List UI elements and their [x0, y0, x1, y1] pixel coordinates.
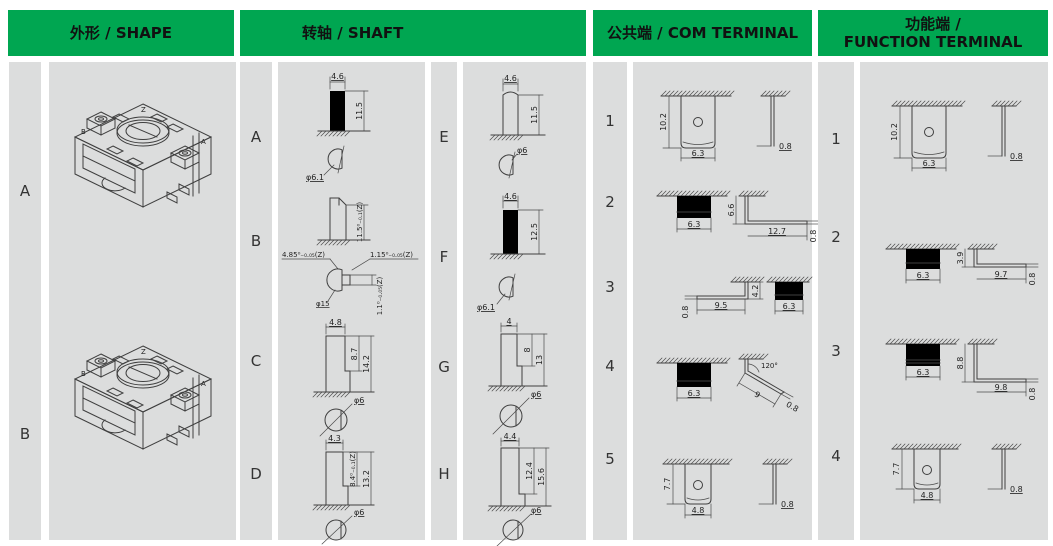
- shaft-row-label-d: D: [240, 465, 272, 483]
- shape-header-label: 外形 / SHAPE: [70, 24, 172, 42]
- dim-label: 8.4⁰₋₀.₁(Z): [349, 451, 357, 487]
- shaft-c-drawing: 4.8 8.7 14.2 φ6: [278, 318, 425, 434]
- shaft-row-label-c: C: [240, 352, 272, 370]
- function-panel: 10.2 6.3 0.8 6.3 3.9: [860, 62, 1048, 540]
- dim-label: 4.8: [921, 491, 934, 500]
- dim-label: 1.1⁰₋₀.₀₅(Z): [376, 276, 384, 315]
- com-terminal-header: 公共端 / COM TERMINAL: [593, 10, 812, 56]
- dim-label: 9: [753, 390, 762, 400]
- shaft-right-panel: 4.6 11.5 φ6 4.6 12.5 φ6.1: [463, 62, 586, 540]
- function-row-label-2: 2: [818, 228, 854, 246]
- dim-label: φ6: [531, 390, 541, 399]
- spec-sheet: 外形 / SHAPE 转轴 / SHAFT 公共端 / COM TERMINAL…: [0, 0, 1053, 546]
- shape-row-label-a: A: [9, 182, 41, 200]
- dim-label: 15.6: [537, 468, 546, 486]
- function-row-label-4: 4: [818, 447, 854, 465]
- shaft-header-label: 转轴 / SHAFT: [302, 24, 403, 42]
- dim-label: 120°: [761, 362, 778, 370]
- com-row-label-2: 2: [593, 193, 627, 211]
- dim-label: 8: [523, 347, 532, 352]
- dim-label: 6.3: [923, 159, 936, 168]
- shaft-row-label-g: G: [431, 358, 457, 376]
- dim-label: 0.8: [809, 230, 818, 243]
- dim-label: 6.3: [783, 302, 796, 311]
- dim-label: 10.2: [659, 113, 668, 131]
- dim-label: 12.4: [525, 462, 534, 480]
- dim-label: φ6: [354, 396, 364, 405]
- dim-label: φ6: [517, 146, 527, 155]
- dim-label: 4.2: [751, 285, 760, 298]
- shaft-left-label-column: A B C D: [240, 62, 272, 540]
- function-terminal-3-drawing: 6.3 8.8 9.8 0.8: [860, 334, 1048, 424]
- shape-label-column: A B: [9, 62, 41, 540]
- dim-label: 4.3: [328, 434, 341, 443]
- dim-label: 4.6: [331, 72, 344, 81]
- dim-label: 4.8: [329, 318, 342, 327]
- com-terminal-4-drawing: 6.3 120° 9 0.8: [633, 347, 812, 447]
- function-header-line2: FUNCTION TERMINAL: [844, 33, 1023, 51]
- dim-label: 0.8: [781, 500, 794, 509]
- com-terminal-1-drawing: 10.2 6.3 0.8: [633, 82, 812, 182]
- shaft-a-drawing: 4.6 11.5 φ6.1: [278, 67, 425, 182]
- dim-label: 0.8: [1028, 273, 1037, 286]
- dim-label: 6.3: [692, 149, 705, 158]
- dim-label: 1.15⁰₋₀.₀₅(Z): [370, 251, 413, 259]
- iso-mark-a: A: [201, 380, 206, 388]
- dim-label: φ15: [316, 300, 330, 308]
- dim-label: 0.8: [1010, 485, 1023, 494]
- dim-label: 6.3: [917, 271, 930, 280]
- com-label-column: 1 2 3 4 5: [593, 62, 627, 540]
- shape-b-isometric-drawing: Z A B: [49, 312, 236, 542]
- iso-mark-z: Z: [141, 106, 146, 114]
- function-header-line1: 功能端 /: [844, 15, 1023, 33]
- iso-mark-b: B: [81, 370, 86, 378]
- dim-label: 13: [535, 355, 544, 365]
- shape-a-isometric-drawing: Z A B: [49, 70, 236, 300]
- dim-label: 0.8: [784, 400, 800, 414]
- com-row-label-4: 4: [593, 357, 627, 375]
- shaft-header: 转轴 / SHAFT: [240, 10, 586, 56]
- iso-mark-a: A: [201, 138, 206, 146]
- dim-label: 9.5: [715, 301, 728, 310]
- dim-label: 0.8: [1010, 152, 1023, 161]
- dim-label: 6.3: [688, 389, 701, 398]
- dim-label: φ6: [531, 506, 541, 515]
- dim-label: 12.7: [768, 227, 786, 236]
- dim-label: φ6: [354, 508, 364, 517]
- shaft-row-label-a: A: [240, 128, 272, 146]
- dim-label: 8.7: [350, 348, 359, 361]
- com-terminal-5-drawing: 7.7 4.8 0.8: [633, 452, 812, 534]
- dim-label: 4.8: [692, 506, 705, 515]
- shaft-row-label-e: E: [431, 128, 457, 146]
- shaft-e-drawing: 4.6 11.5 φ6: [463, 67, 586, 187]
- dim-label: 6.6: [727, 204, 736, 217]
- function-terminal-header: 功能端 / FUNCTION TERMINAL: [818, 10, 1048, 56]
- shape-row-label-b: B: [9, 425, 41, 443]
- dim-label: φ6.1: [306, 173, 324, 182]
- com-row-label-1: 1: [593, 112, 627, 130]
- shaft-d-drawing: 4.3 8.4⁰₋₀.₁(Z) 13.2 φ6: [278, 436, 425, 540]
- dim-label: 4.4: [504, 432, 517, 441]
- function-row-label-3: 3: [818, 342, 854, 360]
- dim-label: 6.3: [917, 368, 930, 377]
- iso-mark-b: B: [81, 128, 86, 136]
- shaft-h-drawing: 4.4 12.4 15.6 φ6: [463, 436, 586, 540]
- dim-label: 4.6: [504, 192, 517, 201]
- dim-label: 13.2: [362, 470, 371, 488]
- dim-label: 11.5: [530, 106, 539, 124]
- iso-mark-z: Z: [141, 348, 146, 356]
- dim-label: 0.8: [681, 306, 690, 319]
- com-row-label-3: 3: [593, 278, 627, 296]
- dim-label: 11.5⁰₋₀.₁(Z): [356, 202, 364, 242]
- shaft-row-label-b: B: [240, 232, 272, 250]
- dim-label: 11.5: [355, 102, 364, 120]
- dim-label: 0.8: [779, 142, 792, 151]
- shaft-g-drawing: 4 8 13 φ6: [463, 320, 586, 434]
- dim-label: 7.7: [892, 463, 901, 476]
- function-row-label-1: 1: [818, 130, 854, 148]
- shaft-f-drawing: 4.6 12.5 φ6.1: [463, 190, 586, 318]
- dim-label: 4.85⁰₋₀.₀₅(Z): [282, 251, 325, 259]
- function-label-column: 1 2 3 4: [818, 62, 854, 540]
- function-terminal-2-drawing: 6.3 3.9 9.7 0.8: [860, 237, 1048, 317]
- dim-label: 3.9: [956, 252, 965, 265]
- dim-label: 6.3: [688, 220, 701, 229]
- dim-label: 7.7: [663, 478, 672, 491]
- com-row-label-5: 5: [593, 450, 627, 468]
- shaft-row-label-h: H: [431, 465, 457, 483]
- dim-label: 12.5: [530, 223, 539, 241]
- shaft-row-label-f: F: [431, 248, 457, 266]
- shape-panel: Z A B: [49, 62, 236, 540]
- com-panel: 10.2 6.3 0.8 6.3 6.6: [633, 62, 812, 540]
- dim-label: 9.7: [995, 270, 1008, 279]
- dim-label: 14.2: [362, 355, 371, 373]
- dim-label: 4.6: [504, 74, 517, 83]
- dim-label: 0.8: [1028, 388, 1037, 401]
- dim-label: 10.2: [890, 123, 899, 141]
- com-terminal-3-drawing: 0.8 9.5 4.2 6.3: [633, 272, 812, 357]
- com-terminal-header-label: 公共端 / COM TERMINAL: [607, 24, 798, 42]
- shaft-left-panel: 4.6 11.5 φ6.1 11.5⁰₋₀.₁(Z) 4.85⁰₋₀.₀₅(Z)…: [278, 62, 425, 540]
- dim-label: 4: [506, 317, 511, 326]
- shaft-right-label-column: E F G H: [431, 62, 457, 540]
- com-terminal-2-drawing: 6.3 6.6 12.7 0.8: [633, 184, 812, 269]
- function-terminal-4-drawing: 7.7 4.8 0.8: [860, 437, 1048, 527]
- dim-label: φ6.1: [477, 303, 495, 312]
- dim-label: 9.8: [995, 383, 1008, 392]
- dim-label: 8.8: [956, 357, 965, 370]
- shaft-b-drawing: 11.5⁰₋₀.₁(Z) 4.85⁰₋₀.₀₅(Z) 1.15⁰₋₀.₀₅(Z)…: [278, 184, 425, 316]
- function-terminal-1-drawing: 10.2 6.3 0.8: [860, 92, 1048, 192]
- shape-header: 外形 / SHAPE: [8, 10, 234, 56]
